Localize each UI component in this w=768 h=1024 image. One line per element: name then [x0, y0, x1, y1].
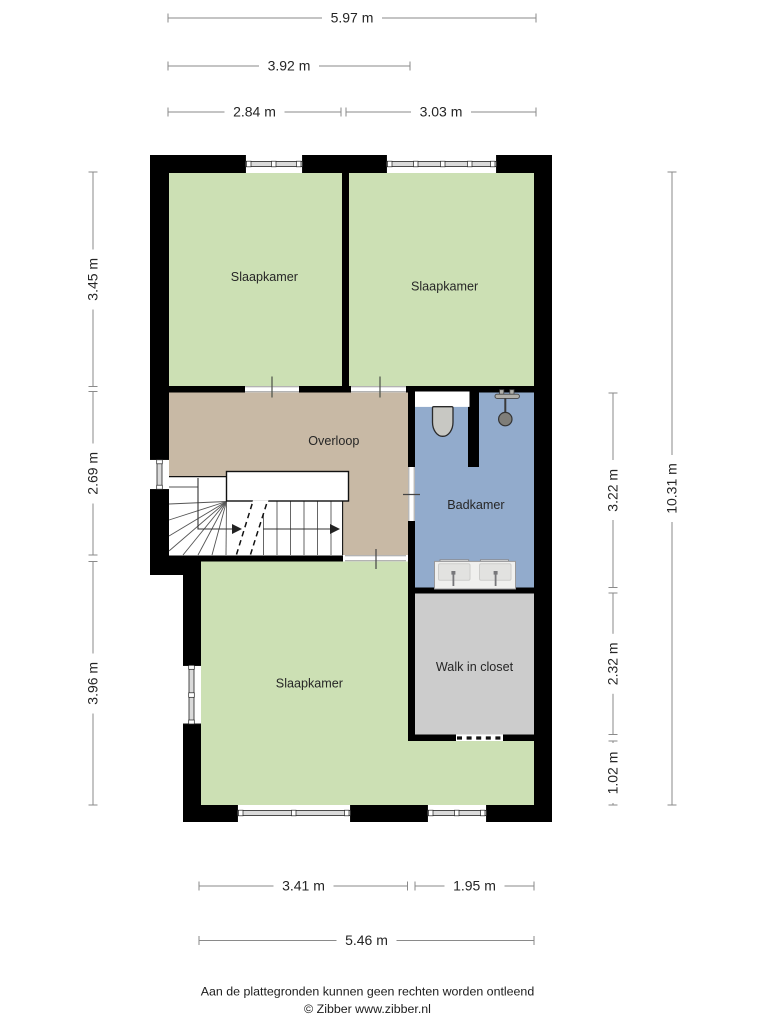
svg-text:5.97 m: 5.97 m: [331, 10, 374, 26]
svg-text:3.96 m: 3.96 m: [85, 662, 101, 705]
svg-text:Slaapkamer: Slaapkamer: [411, 279, 478, 293]
svg-text:Slaapkamer: Slaapkamer: [276, 677, 343, 691]
svg-text:Aan de plattegronden kunnen ge: Aan de plattegronden kunnen geen rechten…: [201, 985, 535, 999]
svg-text:5.46 m: 5.46 m: [345, 932, 388, 948]
svg-text:3.45 m: 3.45 m: [85, 258, 101, 301]
svg-text:Slaapkamer: Slaapkamer: [231, 270, 298, 284]
svg-text:3.41 m: 3.41 m: [282, 878, 325, 894]
svg-text:Badkamer: Badkamer: [447, 498, 504, 512]
svg-text:10.31 m: 10.31 m: [664, 463, 680, 514]
svg-text:2.69 m: 2.69 m: [85, 452, 101, 495]
svg-text:3.03 m: 3.03 m: [420, 104, 463, 120]
svg-text:3.92 m: 3.92 m: [268, 58, 311, 74]
svg-text:© Zibber www.zibber.nl: © Zibber www.zibber.nl: [304, 1002, 431, 1016]
svg-text:Overloop: Overloop: [308, 434, 359, 448]
svg-text:2.32 m: 2.32 m: [605, 642, 621, 685]
svg-text:1.02 m: 1.02 m: [605, 752, 621, 795]
svg-text:3.22 m: 3.22 m: [605, 469, 621, 512]
svg-text:Walk in closet: Walk in closet: [436, 660, 514, 674]
svg-text:1.95 m: 1.95 m: [453, 878, 496, 894]
svg-text:2.84 m: 2.84 m: [233, 104, 276, 120]
